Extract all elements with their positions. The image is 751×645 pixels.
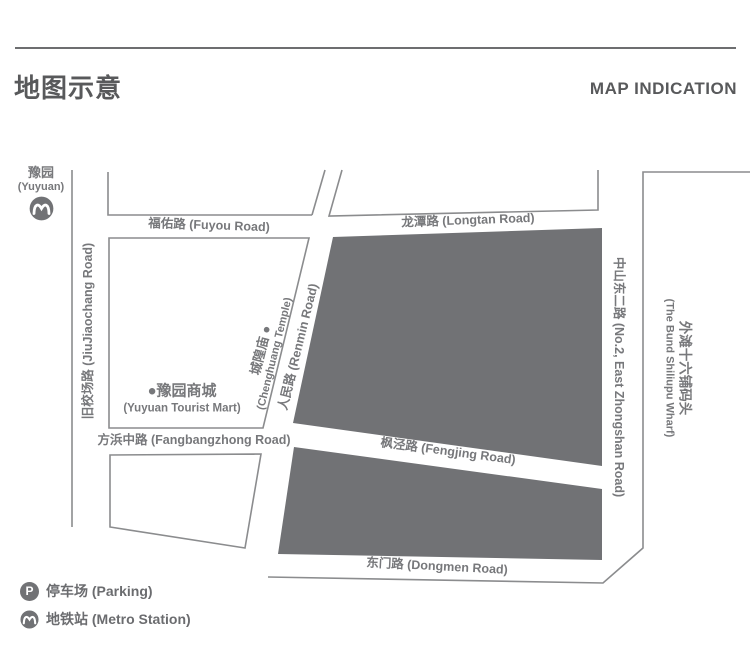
poi-yuyuan-mart: ●豫园商城 (Yuyuan Tourist Mart) — [123, 382, 240, 415]
legend-metro-label: 地铁站 (Metro Station) — [46, 609, 191, 629]
poi-yuyuan-mart-zh: ●豫园商城 — [123, 382, 240, 401]
yuyuan-station-marker: 豫园 (Yuyuan) — [6, 162, 76, 226]
schematic-map — [0, 0, 751, 645]
block-southwest-outline — [110, 454, 261, 548]
legend-parking-row: P 停车场 (Parking) — [20, 581, 153, 601]
poi-yuyuan-mart-en: (Yuyuan Tourist Mart) — [123, 401, 240, 415]
bund-wharf-label: 外滩十六铺码头 (The Bund Shiliupu Wharf) — [662, 299, 693, 438]
block-northeast-outline — [329, 170, 598, 216]
metro-logo-icon — [29, 196, 54, 221]
bund-wharf-label-zh: 外滩十六铺码头 — [675, 299, 692, 438]
city-blocks — [278, 228, 602, 560]
metro-station-icon — [20, 610, 39, 629]
station-name-en: (Yuyuan) — [6, 181, 76, 193]
map-indication-page: 地图示意 MAP INDICATION 豫园 (Yuyuan) — [0, 0, 751, 645]
legend-metro-row: 地铁站 (Metro Station) — [20, 609, 191, 629]
parking-icon: P — [20, 582, 39, 601]
block-northwest-outline — [108, 172, 312, 215]
block-east-filled — [293, 228, 602, 466]
road-label-jiujiaochang: 旧校场路 (JiuJiaochang Road) — [81, 243, 97, 419]
renmin-road-upper-left-line — [312, 170, 325, 215]
road-label-fangbangzhong: 方浜中路 (Fangbangzhong Road) — [97, 433, 290, 449]
block-southeast-filled — [278, 447, 602, 560]
road-label-zhongshan: 中山东二路 (No.2, East Zhongshan Road) — [610, 257, 626, 497]
legend-parking-label: 停车场 (Parking) — [46, 581, 153, 601]
station-name-zh: 豫园 — [6, 162, 76, 181]
bund-wharf-label-en: (The Bund Shiliupu Wharf) — [662, 299, 676, 438]
